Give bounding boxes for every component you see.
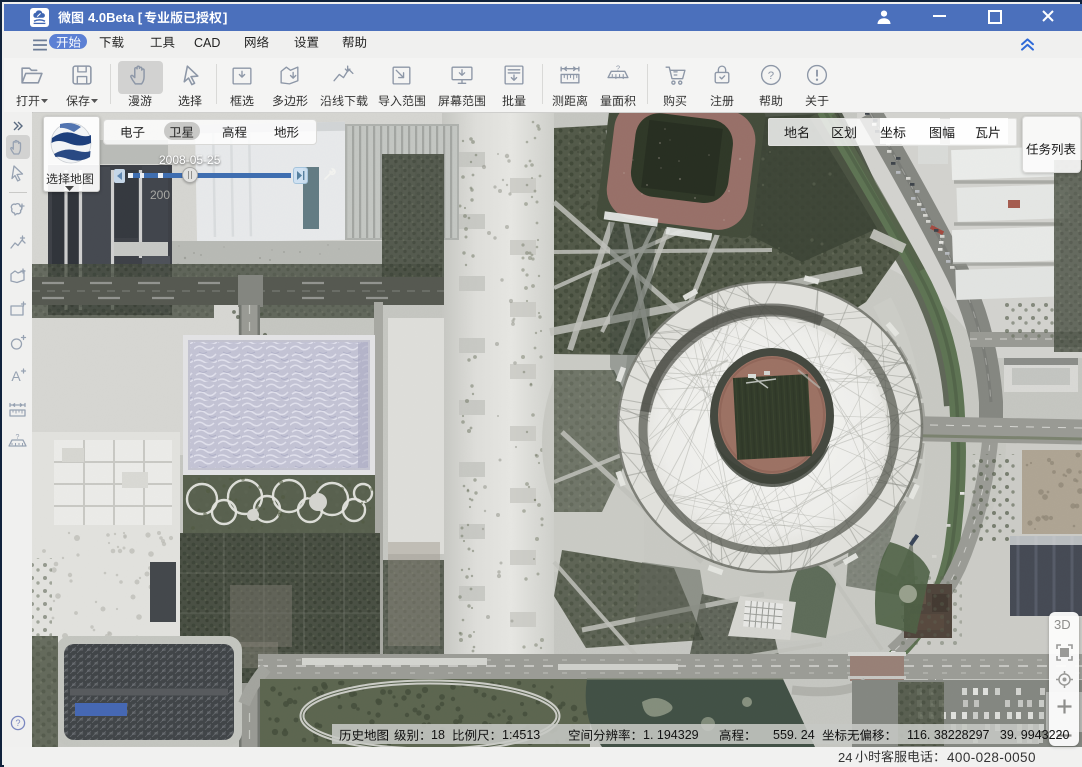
svg-text:A: A [11, 368, 21, 384]
svg-text:?: ? [16, 434, 20, 441]
svg-text:?: ? [768, 70, 774, 82]
svg-text:?: ? [15, 718, 20, 728]
svg-text:?: ? [616, 63, 620, 72]
